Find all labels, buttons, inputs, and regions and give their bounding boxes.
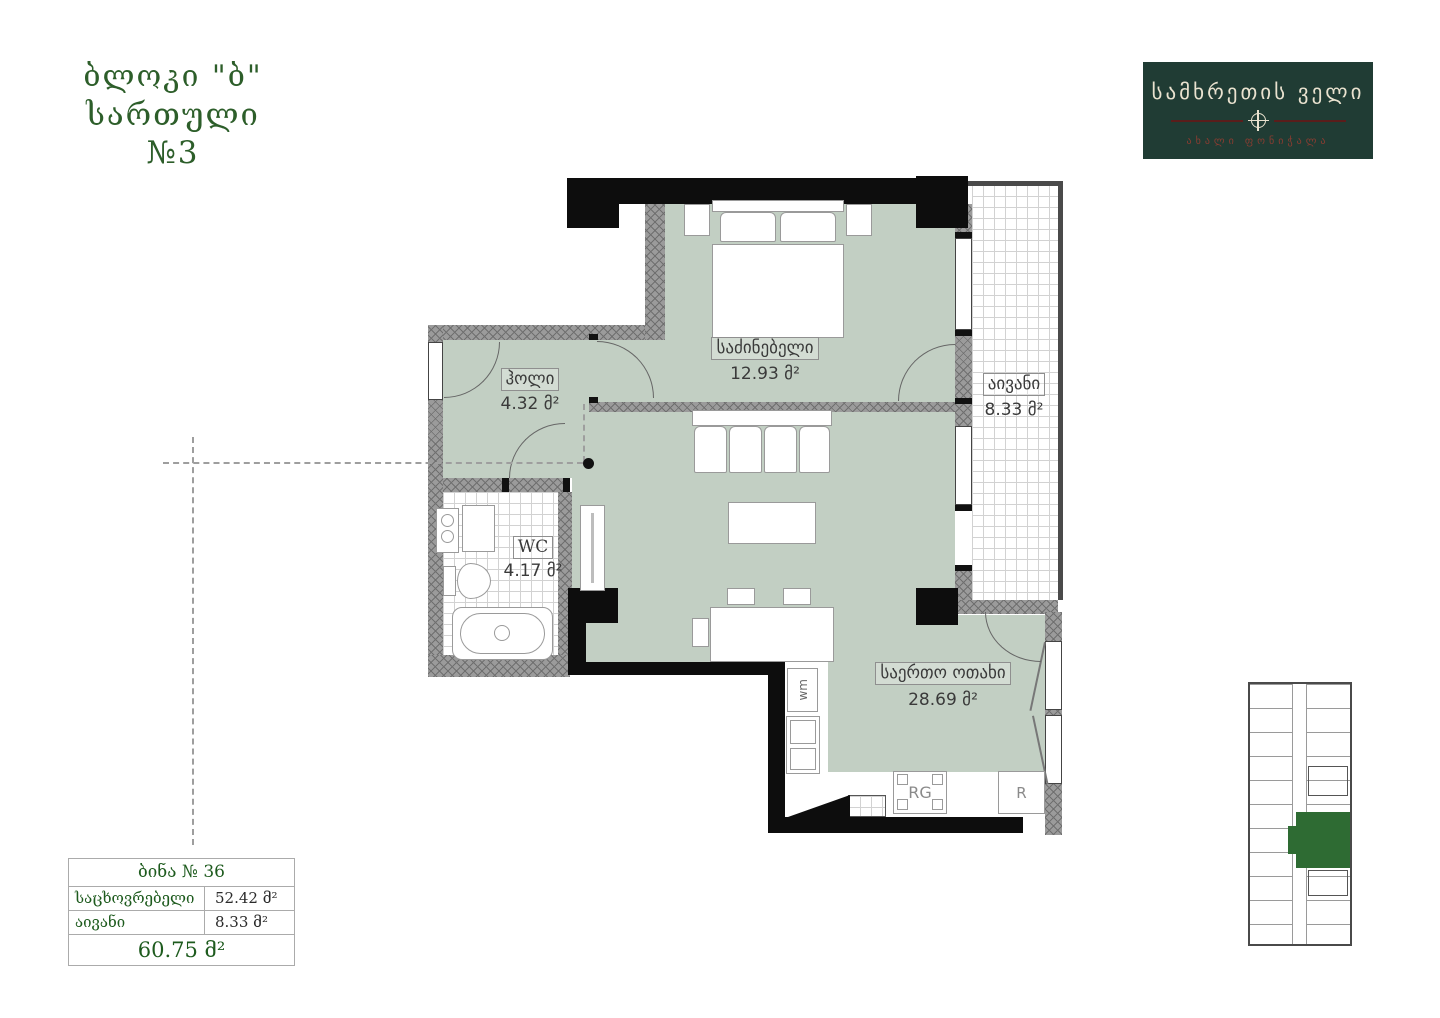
kitchen-window-1 (1045, 641, 1062, 710)
washing-machine-label: wm (796, 679, 810, 701)
sofa-cushion (799, 426, 830, 473)
column-mid-left-step (568, 623, 586, 665)
entry-niche-floor (848, 795, 886, 817)
living-window-balcony (955, 426, 972, 505)
row-label: საცხოვრებელი (69, 887, 205, 910)
chair (783, 588, 811, 605)
toilet-tank (443, 566, 456, 596)
floorplan-page: ბლოკი "ბ" სართული №3 სამხრეთის ველი ახალ… (0, 0, 1440, 1018)
entry-point-dot (583, 458, 594, 469)
nightstand-left (684, 204, 710, 236)
key-plan-rooms-left (1250, 684, 1292, 944)
company-logo: სამხრეთის ველი ახალი ფონიჭალა (1143, 62, 1373, 159)
burner (932, 799, 943, 810)
divider-line-left (1171, 120, 1243, 122)
divider-line-right (1274, 120, 1346, 122)
entrance-opening (428, 342, 443, 400)
column-mid-left (568, 588, 618, 623)
axis-line-horizontal (163, 462, 583, 464)
radiator-line (591, 513, 594, 583)
column-top-right (916, 176, 968, 228)
coffee-table (728, 502, 816, 544)
axis-line-vertical (192, 437, 194, 845)
living-balcony-door-opening (955, 511, 972, 565)
jamb (955, 330, 972, 336)
room-label-hall: ჰოლი (475, 368, 585, 391)
page-title: ბლოკი "ბ" სართული №3 (60, 58, 286, 173)
bedroom-window (955, 238, 972, 330)
highlighted-unit-notch (1288, 826, 1296, 854)
dining-table (710, 607, 834, 662)
table-row: აივანი 8.33 მ² (69, 911, 294, 935)
burner (897, 799, 908, 810)
room-area-balcony: 8.33 მ² (963, 400, 1065, 420)
wall-kitchen-top-black (568, 662, 785, 675)
bathtub-drain (494, 625, 510, 641)
compass-icon (1251, 113, 1266, 128)
balcony-rail-top (967, 181, 1063, 186)
pillow-left (720, 212, 776, 242)
kitchen-sink-basin (790, 720, 816, 744)
wall-kitchen-left-black (768, 670, 785, 833)
column-mid-right (916, 588, 958, 625)
pillow-right (780, 212, 836, 242)
room-area-bedroom: 12.93 მ² (700, 364, 830, 384)
burner (897, 774, 908, 785)
refrigerator: R (998, 771, 1045, 814)
jamb (502, 478, 509, 492)
jamb (563, 478, 570, 492)
block-title: ბლოკი "ბ" (60, 58, 286, 96)
chair (692, 618, 709, 647)
key-plan-core (1308, 870, 1348, 896)
sofa-back (692, 410, 832, 426)
total-area: 60.75 მ² (69, 935, 294, 965)
bed (712, 244, 844, 338)
row-value: 52.42 მ² (205, 887, 294, 910)
wall-hall-top (428, 325, 660, 340)
axis-line-corridor (583, 404, 585, 462)
room-label-bedroom: საძინებელი (700, 337, 830, 360)
room-area-living: 28.69 მ² (858, 690, 1028, 710)
jamb (955, 505, 972, 511)
room-label-living: საერთო ოთახი (858, 662, 1028, 685)
jamb (955, 565, 972, 571)
sofa-cushion (729, 426, 762, 473)
wall-bottom-black (768, 817, 1023, 833)
column-top-left (567, 178, 619, 228)
room-area-wc: 4.17 მ² (488, 561, 578, 581)
floor-title: სართული №3 (60, 96, 286, 174)
jamb (955, 232, 972, 238)
refrigerator-label: R (1016, 784, 1026, 802)
washing-machine: wm (787, 668, 818, 712)
key-plan-core (1308, 766, 1348, 796)
logo-name: სამხრეთის ველი (1143, 80, 1373, 104)
room-label-wc: WC (488, 536, 578, 559)
bed-headboard (712, 200, 844, 212)
key-plan-corridor-line (1292, 684, 1293, 944)
stove-label: RG (908, 783, 932, 802)
sofa-cushion (694, 426, 727, 473)
highlighted-unit (1296, 812, 1350, 868)
room-area-hall: 4.32 მ² (475, 394, 585, 414)
kitchen-window-2 (1045, 715, 1062, 784)
burner (932, 774, 943, 785)
wall-entry-diagonal (788, 795, 850, 817)
water-heater-dial (441, 530, 454, 543)
kitchen-sink-basin (790, 748, 816, 770)
chair (727, 588, 755, 605)
nightstand-right (846, 204, 872, 236)
water-heater-dial (441, 514, 454, 527)
wall-bedroom-left (645, 204, 665, 340)
table-row: საცხოვრებელი 52.42 მ² (69, 887, 294, 911)
logo-divider (1143, 113, 1373, 128)
row-value: 8.33 მ² (205, 911, 294, 934)
jamb (589, 334, 598, 340)
row-label: აივანი (69, 911, 205, 934)
logo-subtitle: ახალი ფონიჭალა (1143, 136, 1373, 147)
apartment-summary-table: ბინა № 36 საცხოვრებელი 52.42 მ² აივანი 8… (68, 858, 295, 966)
room-label-balcony: აივანი (963, 373, 1065, 396)
apartment-number: ბინა № 36 (69, 859, 294, 887)
sofa-cushion (764, 426, 797, 473)
